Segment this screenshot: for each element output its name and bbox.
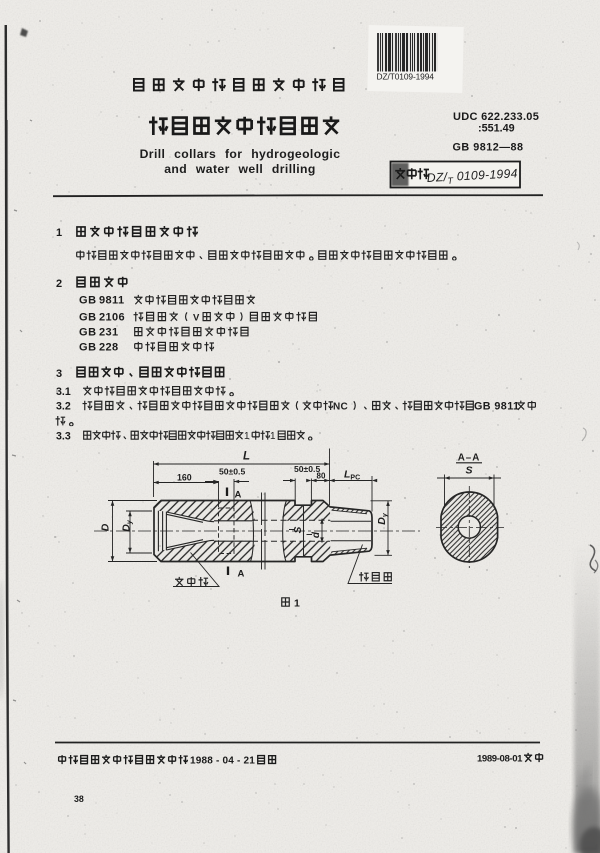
- svg-text:L: L: [243, 451, 250, 463]
- svg-text:GB: GB: [79, 312, 97, 324]
- svg-text:V: V: [193, 312, 200, 323]
- svg-text:1989-08-01: 1989-08-01: [477, 754, 523, 765]
- svg-text:DZ/T0109-1994: DZ/T0109-1994: [377, 72, 435, 82]
- svg-text:231: 231: [99, 327, 119, 339]
- svg-text:A: A: [235, 490, 242, 501]
- svg-text:80: 80: [317, 472, 326, 481]
- svg-text:1: 1: [270, 431, 276, 442]
- svg-text::551.49: :551.49: [478, 123, 515, 135]
- svg-text:GB: GB: [79, 327, 97, 339]
- svg-text:1: 1: [56, 227, 62, 239]
- svg-text:GB 9811: GB 9811: [474, 400, 519, 412]
- svg-text:1: 1: [294, 598, 300, 610]
- svg-text:2: 2: [56, 278, 62, 290]
- svg-text:3: 3: [56, 368, 62, 380]
- svg-text:D: D: [100, 523, 112, 531]
- svg-text:GB: GB: [79, 295, 97, 307]
- svg-text:1988 - 04 - 21: 1988 - 04 - 21: [190, 756, 255, 767]
- svg-text:228: 228: [99, 342, 119, 354]
- svg-text:NC: NC: [333, 401, 348, 412]
- svg-text:1: 1: [244, 431, 250, 442]
- svg-text:38: 38: [74, 794, 84, 804]
- svg-text:A: A: [238, 569, 245, 580]
- svg-text:3.3: 3.3: [56, 431, 71, 443]
- svg-text:9811: 9811: [99, 295, 124, 307]
- svg-text:GB 9812—88: GB 9812—88: [453, 142, 524, 154]
- svg-text:3.2: 3.2: [56, 401, 71, 413]
- svg-text:3.1: 3.1: [56, 386, 71, 398]
- svg-text:A–A: A–A: [458, 453, 481, 464]
- svg-text:160: 160: [177, 473, 192, 483]
- svg-text:2106: 2106: [99, 312, 125, 324]
- svg-text:S: S: [465, 465, 472, 477]
- svg-text:Drill collars for hydrogeologi: Drill collars for hydrogeologic: [140, 147, 341, 161]
- svg-text:and water well drilling: and water well drilling: [164, 162, 316, 176]
- svg-text:S: S: [293, 526, 304, 533]
- svg-text:UDC 622.233.05: UDC 622.233.05: [453, 111, 539, 123]
- svg-text:GB: GB: [79, 342, 97, 354]
- svg-text:50±0.5: 50±0.5: [219, 467, 245, 477]
- svg-text:d: d: [311, 531, 322, 538]
